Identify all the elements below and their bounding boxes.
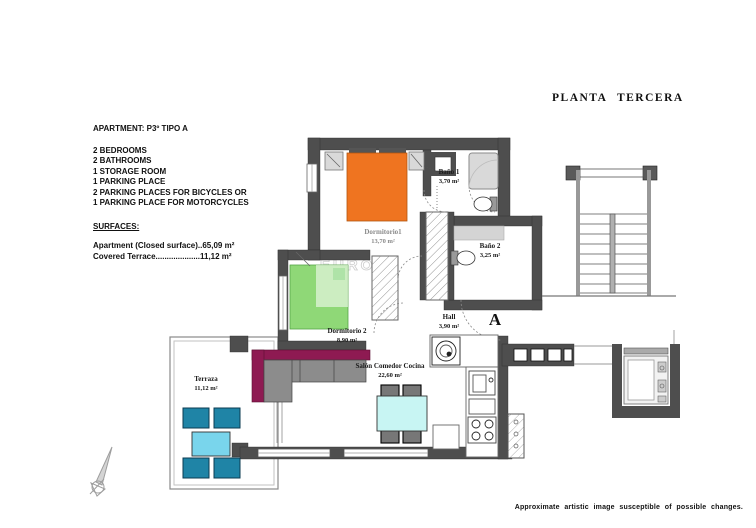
north-arrow-icon: [90, 447, 112, 496]
disclaimer-text: Approximate artistic image susceptible o…: [515, 504, 743, 511]
room-area-terraza: 11,12 m²: [194, 385, 217, 392]
room-area-bano1: 3,70 m²: [439, 178, 459, 185]
fridge: [433, 425, 459, 449]
terrace-chair: [214, 458, 240, 478]
chair: [381, 430, 399, 443]
staircase: [542, 166, 676, 296]
room-area-bano2: 3,25 m²: [480, 252, 500, 259]
room-label-bano2: Baño 2: [480, 242, 501, 250]
terrace-table: [192, 432, 230, 456]
chair: [403, 430, 421, 443]
floorplan-sheet: PLANTA TERCERA APARTMENT: P3º TIPO A 2 B…: [0, 0, 756, 528]
sofa: [252, 350, 370, 402]
terrace-chair: [183, 408, 209, 428]
kitchen: [430, 335, 498, 457]
hob: [468, 417, 496, 443]
dining-table: [377, 396, 427, 431]
section-marker-a: A: [489, 310, 502, 329]
toilet: [474, 197, 497, 211]
elevator: [612, 344, 680, 418]
room-label-dormitorio1: Dormitorio1: [364, 228, 402, 236]
terrace-chair: [214, 408, 240, 428]
shower: [469, 153, 498, 189]
room-area-dormitorio1: 13,70 m²: [371, 238, 395, 245]
shower: [454, 226, 504, 240]
room-area-dormitorio2: 8,90 m²: [337, 337, 357, 344]
terrace-furniture: [183, 408, 240, 478]
dining-set: [377, 385, 427, 443]
room-label-terraza: Terraza: [194, 375, 218, 383]
room-area-hall: 3,90 m²: [439, 323, 459, 330]
room-area-salon: 22,60 m²: [378, 372, 402, 379]
room-label-bano1: Baño 1: [439, 168, 460, 176]
room-label-dormitorio2: Dormitorio 2: [327, 327, 367, 335]
room-label-hall: Hall: [443, 313, 456, 321]
toilet: [451, 251, 475, 265]
terrace-chair: [183, 458, 209, 478]
bathroom1-fixtures: [424, 152, 498, 211]
storage-room: [508, 414, 524, 458]
floorplan-drawing: EUROPA: [0, 0, 756, 528]
bed-double: [325, 148, 424, 221]
room-label-salon: Salón Comedor Cocina: [355, 362, 425, 370]
sink: [469, 371, 495, 395]
